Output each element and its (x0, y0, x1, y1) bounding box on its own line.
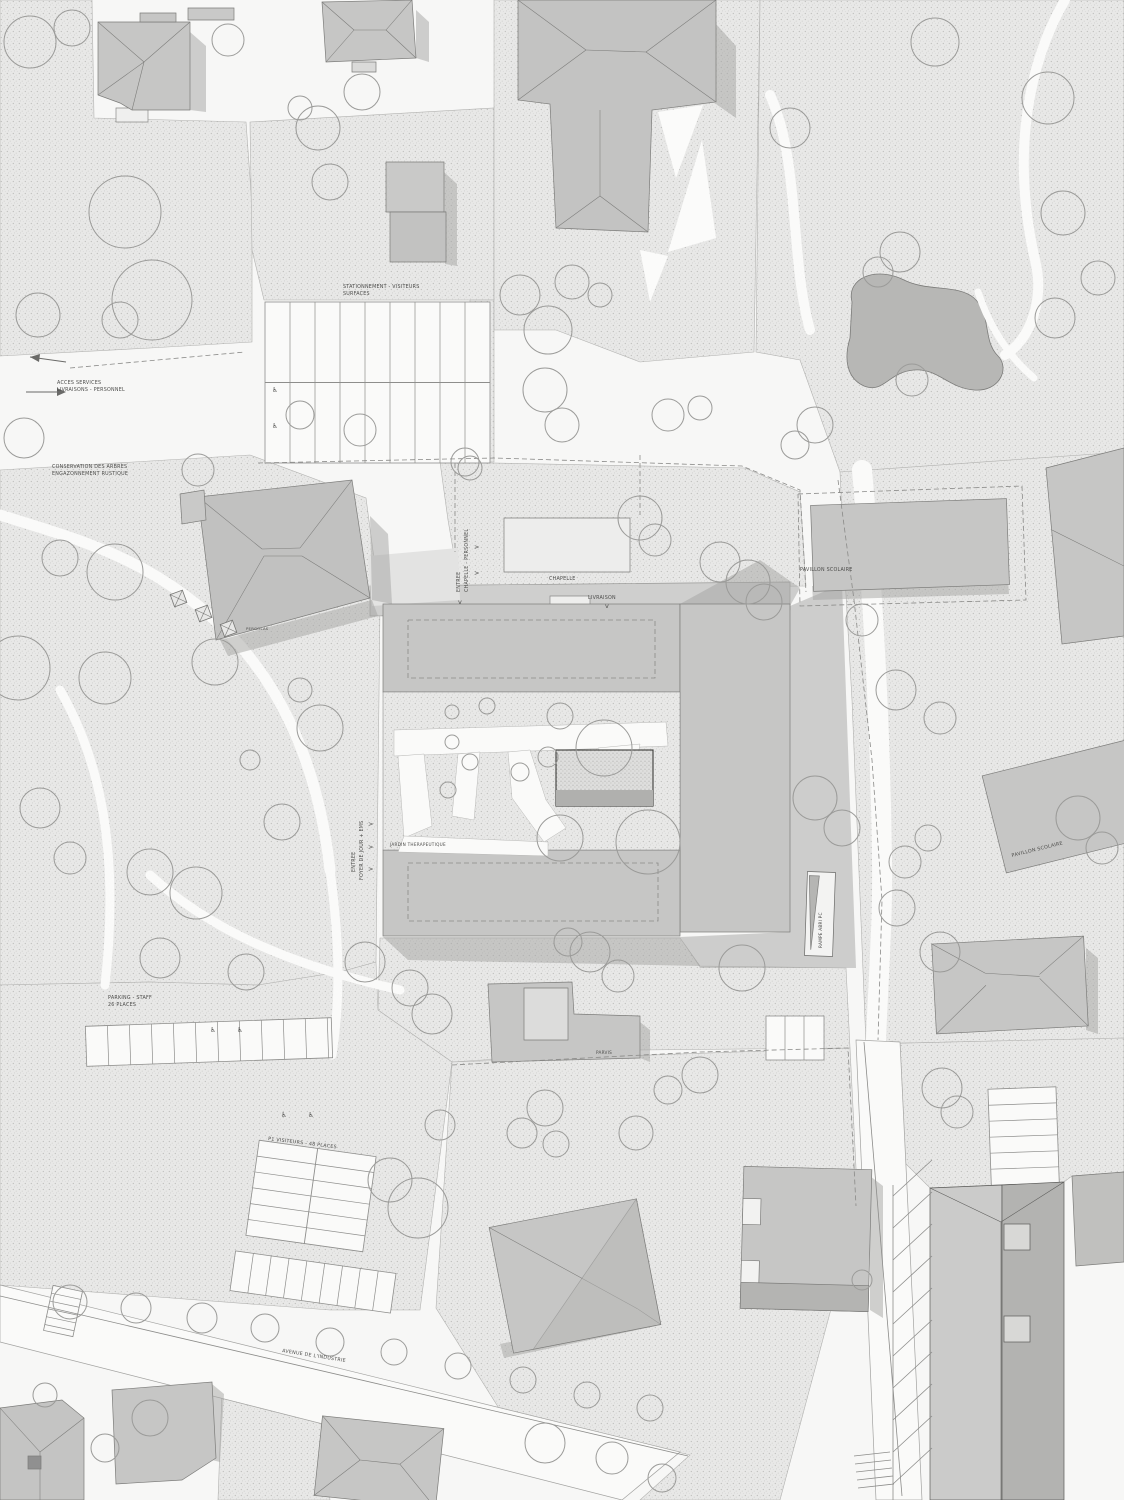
map-label: SURFACES (343, 291, 370, 297)
map-label: PARKING - STAFF (108, 995, 152, 1001)
building (314, 1416, 444, 1500)
building-shadow (190, 32, 206, 112)
entrance-chevron-icon: > (474, 569, 480, 577)
map-label: PAVILLON SCOLAIRE (800, 567, 853, 573)
house-sw (0, 1400, 84, 1500)
map-label: ACCES SERVICES (57, 380, 101, 386)
wheelchair-icon: ♿ (210, 1026, 216, 1034)
building (740, 1282, 869, 1311)
entrance-chevron-icon: > (368, 843, 374, 851)
building (28, 1456, 41, 1469)
entrance-chevron-icon: > (474, 543, 480, 551)
building (742, 1198, 761, 1224)
ems-east-wing (680, 604, 790, 932)
map-label: LIVRAISONS - PERSONNEL (57, 387, 125, 393)
house-e (932, 936, 1089, 1034)
parking-lot (766, 1016, 824, 1060)
map-label: ENTREE (351, 852, 357, 872)
vegetation-area (0, 962, 452, 1310)
map-label: PERGOLAS (246, 626, 269, 631)
vegetation-area (250, 108, 494, 300)
school-pavilion (811, 499, 1010, 592)
parking-lot (85, 1018, 332, 1067)
house-nw (98, 22, 190, 110)
map-label: JARDIN THERAPEUTIQUE (389, 842, 446, 847)
map-label: PARVIS (596, 1050, 612, 1055)
house-n (322, 0, 416, 62)
parking-lot (265, 302, 490, 463)
map-label: CHAPELLE (549, 576, 576, 582)
building (390, 212, 446, 262)
map-label: 26 PLACES (108, 1002, 136, 1008)
building (352, 62, 376, 72)
wheelchair-icon: ♿ (272, 422, 278, 430)
site-plan-svg: >>vv>>>♿♿♿♿♿♿STATIONNEMENT - VISITEURSSU… (0, 0, 1124, 1500)
building (386, 162, 444, 212)
surface (504, 518, 630, 572)
building (140, 13, 176, 22)
map-label: CHAPELLE - PERSONNEL (464, 529, 470, 592)
parking-lot (246, 1140, 376, 1251)
entrance-chevron-icon: v (605, 602, 609, 610)
building (1072, 1172, 1124, 1266)
building (1004, 1224, 1030, 1250)
entrance-chevron-icon: v (458, 598, 462, 606)
map-label: CONSERVATION DES ARBRES (52, 464, 127, 470)
entrance-chevron-icon: > (368, 820, 374, 828)
wheelchair-icon: ♿ (272, 386, 278, 394)
building (188, 8, 234, 20)
building (1004, 1316, 1030, 1342)
ems-north-wing (383, 604, 680, 692)
map-label: LIVRAISON (588, 595, 616, 601)
wheelchair-icon: ♿ (237, 1026, 243, 1034)
tower-se (930, 1185, 1002, 1500)
site-plan-page: >>vv>>>♿♿♿♿♿♿STATIONNEMENT - VISITEURSSU… (0, 0, 1124, 1500)
entrance-chevron-icon: > (368, 865, 374, 873)
courtyard-layer (383, 692, 680, 856)
map-label: RAMPE ABRI PC (818, 912, 823, 948)
wheelchair-icon: ♿ (308, 1111, 314, 1119)
map-label: FOYER DE JOUR + EMS (359, 821, 365, 880)
building (524, 988, 568, 1040)
map-label: ENTREE (456, 572, 462, 592)
building (180, 490, 206, 524)
terrace-step (556, 790, 653, 806)
map-label: STATIONNEMENT - VISITEURS (343, 284, 420, 290)
wheelchair-icon: ♿ (281, 1111, 287, 1119)
map-label: ENGAZONNEMENT RUSTIQUE (52, 471, 128, 477)
